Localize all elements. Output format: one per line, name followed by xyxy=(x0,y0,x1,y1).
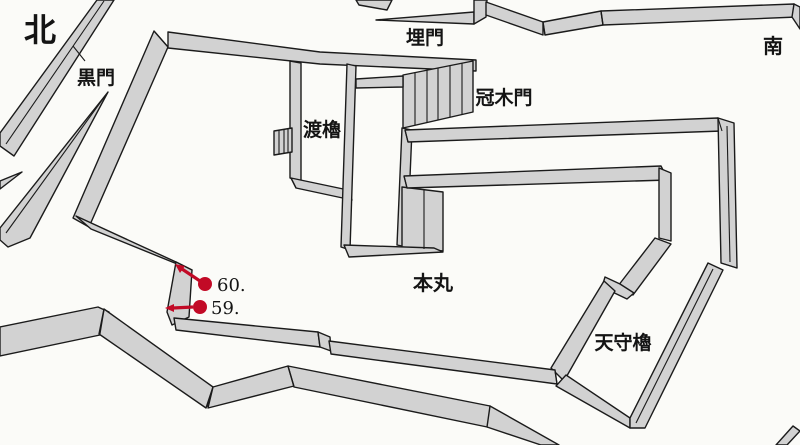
wall-tenshu-northwest-wall xyxy=(618,238,671,295)
walls-layer xyxy=(0,0,800,445)
wall-south-rim-west xyxy=(486,2,543,35)
label-north: 北 xyxy=(24,11,56,49)
wall-south-rim-sliver xyxy=(376,12,474,24)
wall-south-rim-cap xyxy=(474,0,487,24)
wall-outer-wall-south-exit xyxy=(487,406,559,445)
marker-59-label[interactable]: 59. xyxy=(211,298,240,319)
label-kabukimon: 冠木門 xyxy=(475,86,532,109)
label-watariyagura: 渡櫓 xyxy=(303,118,341,141)
wall-north-gap-fragment xyxy=(356,0,392,10)
wall-notch-upper-wall xyxy=(76,216,192,270)
marker-59-dot[interactable] xyxy=(193,300,207,314)
wall-corridor-west-wall xyxy=(341,64,356,250)
wall-northeast-wall-upper xyxy=(405,118,722,142)
label-tenshuyagura: 天守櫓 xyxy=(594,331,651,354)
wall-watariyagura-west-wall xyxy=(290,61,301,182)
wall-south-gate-steps xyxy=(402,187,443,251)
castle-map-svg: 北黒門埋門南渡櫓冠木門本丸天守櫓 60.59. xyxy=(0,0,800,445)
marker-60-dot[interactable] xyxy=(198,277,212,291)
label-honmaru: 本丸 xyxy=(412,271,454,295)
wall-bottom-right-fragment xyxy=(776,426,800,445)
marker-59-arrow-shaft xyxy=(173,307,193,308)
wall-outer-wall-west xyxy=(0,307,109,356)
label-kuromon: 黒門 xyxy=(77,67,115,89)
marker-60-label[interactable]: 60. xyxy=(217,275,246,296)
castle-map: 北黒門埋門南渡櫓冠木門本丸天守櫓 60.59. xyxy=(0,0,800,445)
wall-south-rim-long xyxy=(601,4,797,25)
wall-corridor-bridge xyxy=(356,76,403,88)
wall-west-sliver-wall xyxy=(0,172,22,189)
wall-west-stairs xyxy=(274,128,292,155)
wall-outer-wall-rise xyxy=(208,366,294,408)
wall-south-rim-end-cap xyxy=(792,4,800,29)
wall-east-wall-inner-vertical xyxy=(659,168,671,241)
wall-outer-wall-east xyxy=(288,366,492,428)
wall-inner-south-wall-east xyxy=(329,341,557,384)
wall-inner-south-wall-west xyxy=(174,318,320,347)
wall-tenshu-west-wall xyxy=(551,281,615,381)
label-uzumimon: 埋門 xyxy=(406,27,444,49)
wall-south-rim-mid xyxy=(543,11,603,35)
wall-northeast-wall-lower xyxy=(404,166,668,188)
wall-tenshu-south-wall xyxy=(556,375,630,428)
label-minami: 南 xyxy=(763,34,783,58)
